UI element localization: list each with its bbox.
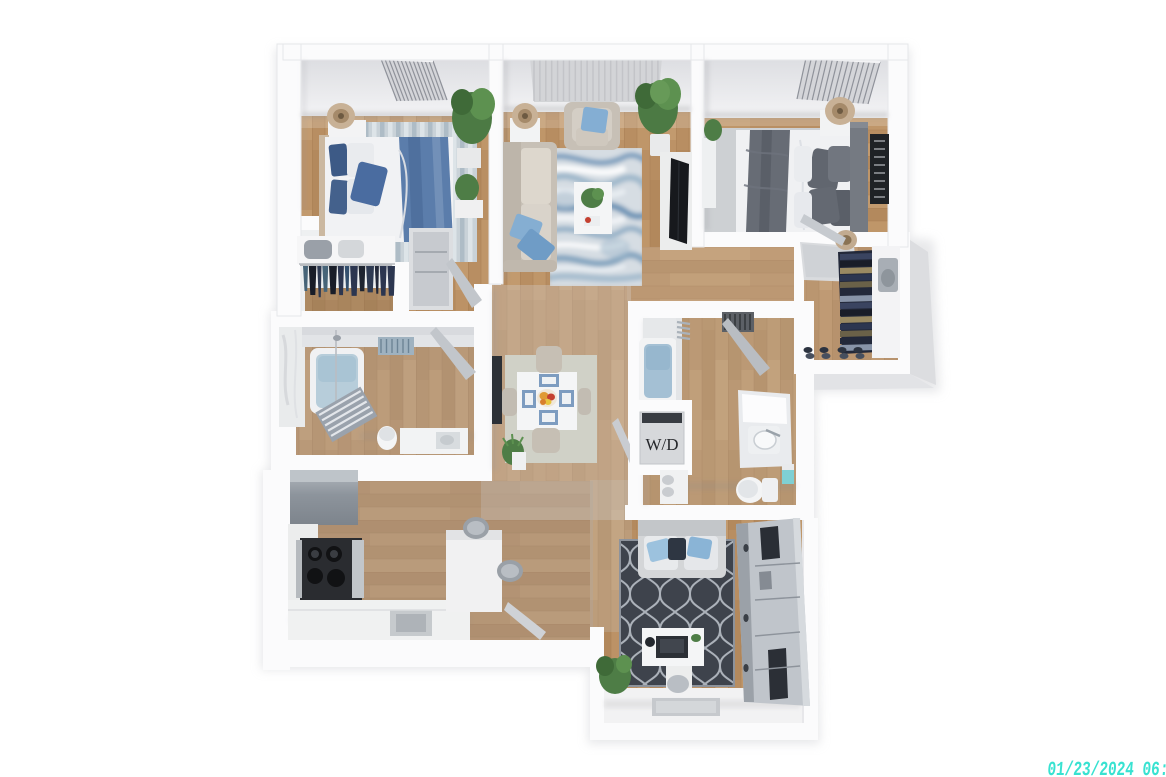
svg-text:W/D: W/D: [645, 435, 678, 454]
svg-text:01/23/2024 06:1: 01/23/2024 06:1: [1046, 759, 1166, 777]
